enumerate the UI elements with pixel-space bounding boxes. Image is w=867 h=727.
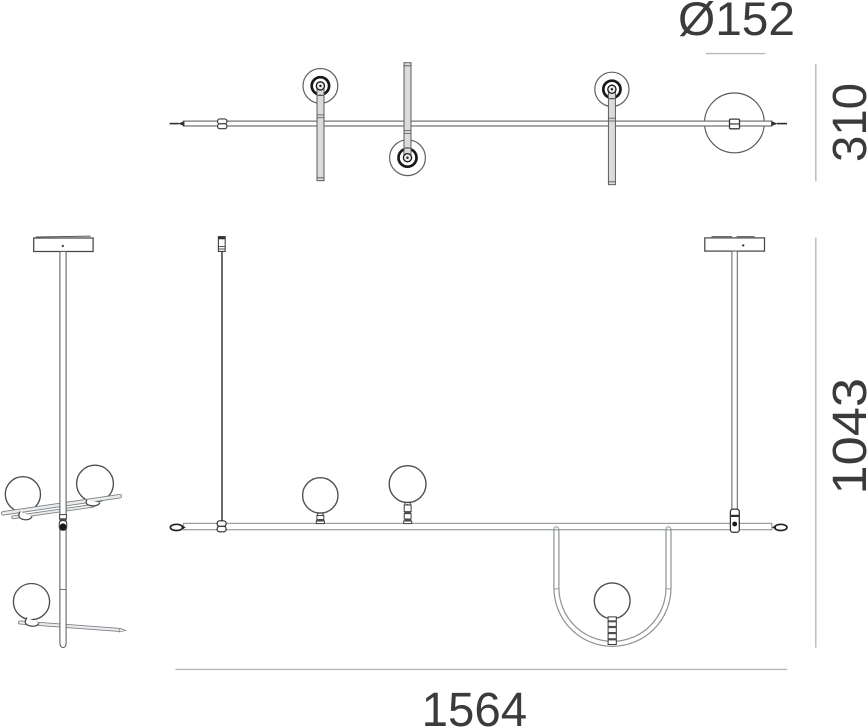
svg-text:310: 310 bbox=[823, 83, 867, 162]
svg-text:1043: 1043 bbox=[823, 378, 867, 495]
svg-text:1564: 1564 bbox=[422, 684, 527, 727]
svg-text:Ø152: Ø152 bbox=[678, 0, 795, 45]
